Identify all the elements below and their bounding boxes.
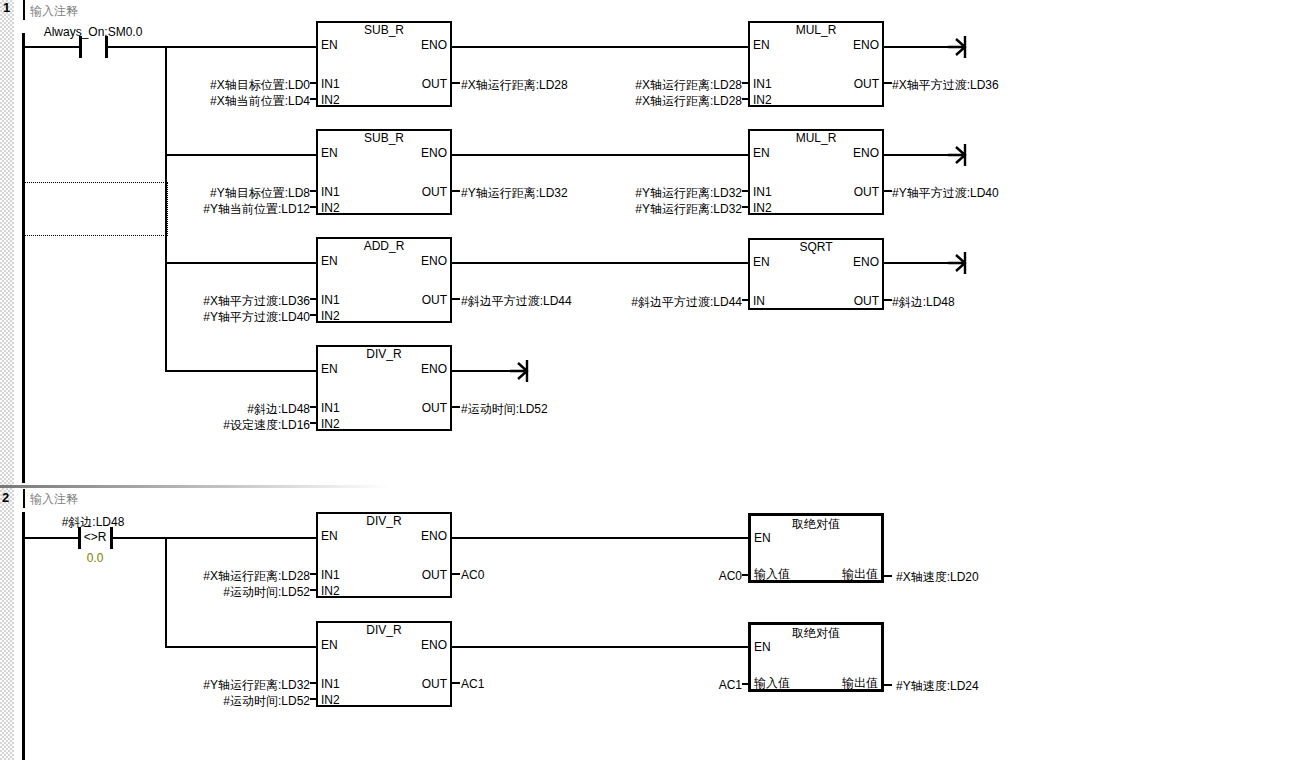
pin-stub [742, 683, 748, 685]
port-in1: IN1 [321, 77, 340, 91]
network-gutter [0, 0, 14, 760]
wire [452, 262, 748, 264]
fbd-block-mul-y[interactable]: MUL_R EN ENO IN1 IN2 OUT [748, 129, 884, 215]
port-eno: ENO [421, 254, 447, 268]
pin-stub [452, 406, 460, 408]
port-in2: IN2 [321, 693, 340, 707]
port-out: OUT [422, 77, 447, 91]
fbd-block-div-vy[interactable]: DIV_R EN ENO IN1 IN2 OUT [316, 621, 452, 707]
port-in1: IN1 [753, 77, 772, 91]
port-out: OUT [854, 185, 879, 199]
network-2-comment[interactable]: 输入注释 [30, 491, 78, 508]
port-eno: ENO [421, 638, 447, 652]
pin-stub [742, 190, 748, 192]
operand-field[interactable]: #X轴速度:LD20 [896, 569, 979, 586]
pin-stub [452, 82, 460, 84]
port-in2: IN2 [321, 309, 340, 323]
pin-stub [310, 589, 316, 591]
wire [452, 370, 510, 372]
wire-continuation-arrow-icon [948, 141, 970, 169]
compare-value[interactable]: 0.0 [80, 551, 110, 565]
port-en: EN [753, 146, 770, 160]
port-out: OUT [422, 568, 447, 582]
fbd-block-add[interactable]: ADD_R EN ENO IN1 IN2 OUT [316, 237, 452, 323]
pin-stub [742, 574, 748, 576]
wire [452, 154, 748, 156]
port-eno: ENO [421, 146, 447, 160]
pin-stub [310, 314, 316, 316]
port-value-in: 输入值 [754, 566, 790, 583]
operand-field[interactable]: #运动时间:LD52 [461, 401, 548, 418]
pin-stub [884, 684, 892, 686]
operand-field[interactable]: #Y轴当前位置:LD12 [203, 201, 310, 218]
fbd-block-sub-x[interactable]: SUB_R EN ENO IN1 IN2 OUT [316, 21, 452, 107]
port-en: EN [753, 38, 770, 52]
port-out: OUT [422, 293, 447, 307]
wire [884, 154, 948, 156]
wire [452, 537, 748, 539]
port-out: OUT [854, 294, 879, 308]
operand-field[interactable]: #Y轴平方过渡:LD40 [203, 309, 310, 326]
block-title: SUB_R [318, 23, 450, 37]
wire [167, 370, 316, 372]
operand-field[interactable]: #X轴运行距离:LD28 [461, 77, 568, 94]
operand-field[interactable]: #斜边平方过渡:LD44 [631, 294, 742, 311]
port-value-in: 输入值 [754, 675, 790, 692]
block-title: ADD_R [318, 239, 450, 253]
port-eno: ENO [421, 529, 447, 543]
pin-stub [310, 82, 316, 84]
fbd-block-div-vx[interactable]: DIV_R EN ENO IN1 IN2 OUT [316, 512, 452, 598]
fbd-block-sub-y[interactable]: SUB_R EN ENO IN1 IN2 OUT [316, 129, 452, 215]
block-title: SUB_R [318, 131, 450, 145]
comment-divider [23, 489, 25, 508]
pin-stub [452, 298, 460, 300]
pin-stub [310, 298, 316, 300]
branch-wire [165, 537, 167, 648]
fbd-block-div-time[interactable]: DIV_R EN ENO IN1 IN2 OUT [316, 345, 452, 431]
operand-field[interactable]: AC1 [719, 678, 742, 692]
contact-operand[interactable]: Always_On:SM0.0 [38, 25, 148, 39]
pin-stub [742, 98, 748, 100]
wire [167, 646, 316, 648]
operand-field[interactable]: #斜边平方过渡:LD44 [461, 293, 572, 310]
port-en: EN [321, 529, 338, 543]
power-rail [22, 33, 25, 483]
wire-continuation-arrow-icon [948, 249, 970, 277]
operand-field[interactable]: AC0 [719, 569, 742, 583]
wire [167, 46, 316, 48]
port-in: IN [753, 294, 765, 308]
operand-field[interactable]: #Y轴运行距离:LD32 [635, 201, 742, 218]
subroutine-block-abs-x[interactable]: 取绝对值 EN 输入值 输出值 [748, 513, 884, 583]
pin-stub [310, 98, 316, 100]
port-out: OUT [422, 677, 447, 691]
port-en: EN [754, 640, 771, 654]
block-title: MUL_R [750, 131, 882, 145]
pin-stub [310, 573, 316, 575]
network-2-number: 2 [2, 490, 9, 505]
port-eno: ENO [853, 255, 879, 269]
operand-field[interactable]: #X轴运行距离:LD28 [635, 93, 742, 110]
wire [167, 154, 316, 156]
port-eno: ENO [421, 362, 447, 376]
network-1-comment[interactable]: 输入注释 [30, 3, 78, 20]
contact-operand[interactable]: #斜边:LD48 [38, 514, 148, 531]
port-in2: IN2 [321, 584, 340, 598]
comment-divider [23, 0, 25, 20]
port-in2: IN2 [753, 201, 772, 215]
port-en: EN [321, 38, 338, 52]
network-1-number: 1 [3, 0, 10, 15]
port-eno: ENO [421, 38, 447, 52]
operand-field[interactable]: #斜边:LD48 [247, 401, 310, 418]
pin-stub [884, 575, 892, 577]
wire [884, 46, 948, 48]
operand-field[interactable]: #Y轴速度:LD24 [896, 678, 979, 695]
port-en: EN [754, 531, 771, 545]
selection-cursor [23, 182, 168, 236]
block-title: SQRT [750, 240, 882, 254]
wire-continuation-arrow-icon [948, 33, 970, 61]
operand-field[interactable]: #Y轴目标位置:LD8 [210, 185, 310, 202]
pin-stub [884, 190, 892, 192]
contact-normally-open[interactable] [79, 36, 82, 58]
wire [24, 537, 78, 539]
wire [167, 262, 316, 264]
block-title: DIV_R [318, 623, 450, 637]
port-in2: IN2 [321, 201, 340, 215]
operand-field[interactable]: #X轴运行距离:LD28 [635, 77, 742, 94]
port-en: EN [321, 638, 338, 652]
operand-field[interactable]: #X轴平方过渡:LD36 [203, 293, 310, 310]
port-in1: IN1 [753, 185, 772, 199]
fbd-block-sqrt[interactable]: SQRT EN ENO IN OUT [748, 238, 884, 310]
block-title: DIV_R [318, 514, 450, 528]
network-separator [0, 485, 1301, 488]
pin-stub [310, 682, 316, 684]
port-eno: ENO [853, 38, 879, 52]
port-out: OUT [854, 77, 879, 91]
port-in1: IN1 [321, 401, 340, 415]
operand-field[interactable]: #X轴目标位置:LD0 [210, 77, 310, 94]
operand-field[interactable]: AC1 [461, 677, 484, 691]
pin-stub [310, 406, 316, 408]
block-title: DIV_R [318, 347, 450, 361]
pin-stub [742, 299, 748, 301]
operand-field[interactable]: #X轴运行距离:LD28 [203, 568, 310, 585]
pin-stub [742, 206, 748, 208]
port-in1: IN1 [321, 568, 340, 582]
port-in1: IN1 [321, 185, 340, 199]
wire [452, 46, 748, 48]
operand-field[interactable]: #Y轴运行距离:LD32 [635, 185, 742, 202]
pin-stub [310, 190, 316, 192]
fbd-block-mul-x[interactable]: MUL_R EN ENO IN1 IN2 OUT [748, 21, 884, 107]
port-in2: IN2 [753, 93, 772, 107]
operand-field[interactable]: #运动时间:LD52 [223, 584, 310, 601]
port-en: EN [321, 254, 338, 268]
pin-stub [742, 82, 748, 84]
port-in2: IN2 [321, 93, 340, 107]
operand-field[interactable]: #Y轴运行距离:LD32 [203, 677, 310, 694]
port-in1: IN1 [321, 677, 340, 691]
wire [24, 46, 79, 48]
operand-field[interactable]: #设定速度:LD16 [223, 417, 310, 434]
wire [884, 262, 948, 264]
operand-field[interactable]: #斜边:LD48 [892, 294, 955, 311]
operand-field[interactable]: #Y轴平方过渡:LD40 [892, 185, 999, 202]
pin-stub [884, 299, 892, 301]
operand-field[interactable]: #运动时间:LD52 [223, 693, 310, 710]
port-in1: IN1 [321, 293, 340, 307]
port-en: EN [753, 255, 770, 269]
port-out: OUT [422, 401, 447, 415]
port-value-out: 输出值 [842, 566, 878, 583]
pin-stub [452, 682, 460, 684]
port-value-out: 输出值 [842, 675, 878, 692]
operand-field[interactable]: #Y轴运行距离:LD32 [461, 185, 568, 202]
port-in2: IN2 [321, 417, 340, 431]
port-en: EN [321, 362, 338, 376]
compare-operator[interactable]: <>R [80, 530, 110, 544]
pin-stub [310, 422, 316, 424]
wire [113, 537, 167, 539]
power-rail [22, 512, 25, 760]
subroutine-block-abs-y[interactable]: 取绝对值 EN 输入值 输出值 [748, 622, 884, 692]
port-en: EN [321, 146, 338, 160]
pin-stub [310, 206, 316, 208]
pin-stub [452, 573, 460, 575]
wire [452, 646, 748, 648]
block-title: MUL_R [750, 23, 882, 37]
operand-field[interactable]: #X轴当前位置:LD4 [210, 93, 310, 110]
port-eno: ENO [853, 146, 879, 160]
port-out: OUT [422, 185, 447, 199]
pin-stub [884, 82, 892, 84]
ladder-editor-canvas: 1 输入注释 Always_On:SM0.0 SUB_R EN ENO IN1 … [0, 0, 1301, 760]
wire-continuation-arrow-icon [510, 357, 532, 385]
operand-field[interactable]: AC0 [461, 568, 484, 582]
pin-stub [452, 190, 460, 192]
pin-stub [310, 698, 316, 700]
operand-field[interactable]: #X轴平方过渡:LD36 [892, 77, 999, 94]
wire [108, 46, 167, 48]
wire [167, 537, 316, 539]
